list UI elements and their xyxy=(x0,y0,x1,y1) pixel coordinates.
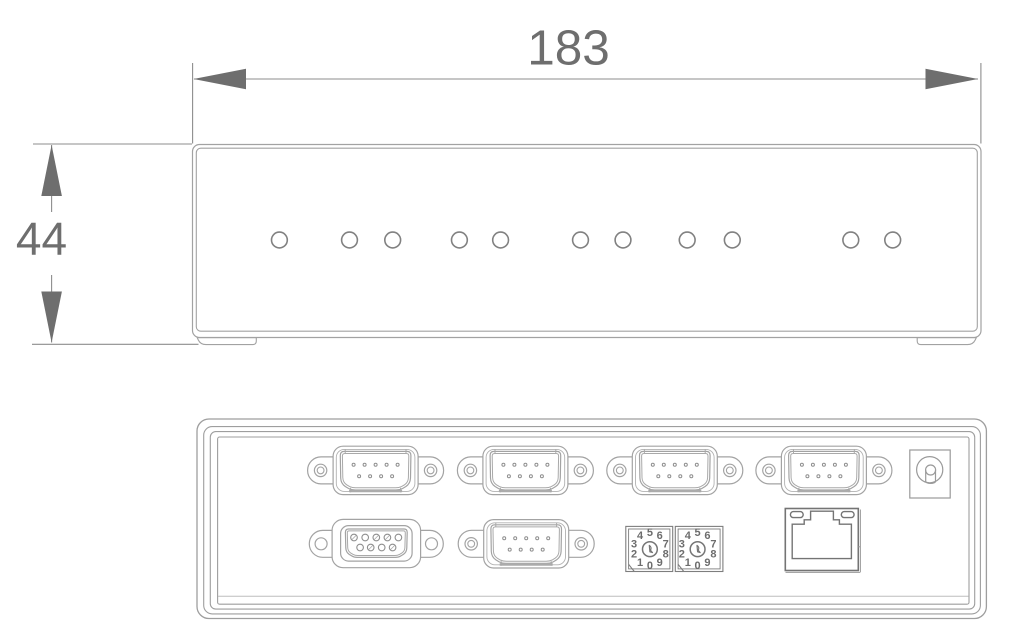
svg-text:8: 8 xyxy=(710,549,716,561)
svg-text:9: 9 xyxy=(704,557,710,569)
svg-text:44: 44 xyxy=(16,213,67,265)
svg-text:1: 1 xyxy=(685,557,691,569)
svg-text:5: 5 xyxy=(695,527,701,539)
svg-text:8: 8 xyxy=(663,549,669,561)
svg-text:0: 0 xyxy=(647,560,653,572)
svg-text:4: 4 xyxy=(637,530,644,542)
svg-text:5: 5 xyxy=(647,527,653,539)
svg-text:4: 4 xyxy=(685,530,692,542)
svg-text:2: 2 xyxy=(679,549,685,561)
svg-text:2: 2 xyxy=(631,549,637,561)
svg-text:1: 1 xyxy=(637,557,643,569)
svg-text:183: 183 xyxy=(527,21,610,76)
svg-text:9: 9 xyxy=(657,557,663,569)
svg-text:0: 0 xyxy=(695,560,701,572)
